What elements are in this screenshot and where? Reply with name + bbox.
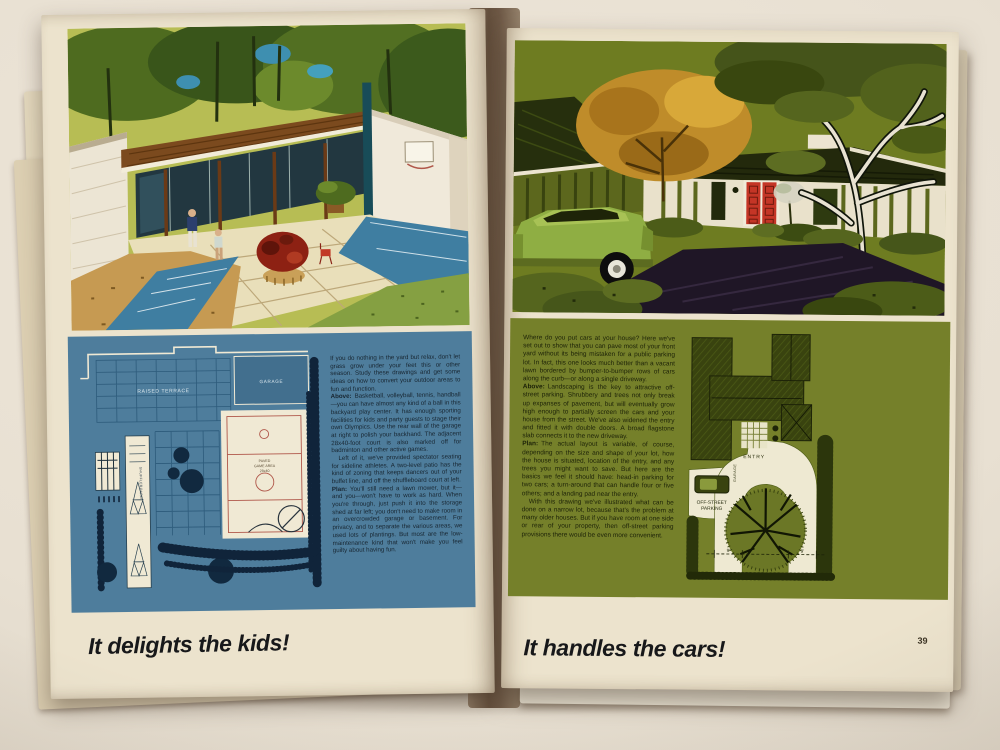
shuffleboard-label: SHUFFLEBOARD — [139, 467, 143, 500]
raised-terrace-label: RAISED TERRACE — [137, 388, 189, 395]
bottom-hedge-inner — [167, 561, 317, 571]
paragraph: Plan:You'll still need a lawn mower, but… — [332, 484, 463, 555]
driveway-illustration — [512, 40, 946, 316]
magazine-photo: RAISED TERRACE GARAGE — [0, 0, 1000, 750]
svg-text:9': 9' — [801, 549, 805, 554]
parking-site-plan: ENTRY GARAGE OFF-STREET PARKING 9' 9' — [684, 324, 948, 596]
parking-plan-panel: Where do you put cars at your house? Her… — [508, 318, 950, 600]
right-page: Where do you put cars at your house? Her… — [501, 28, 959, 692]
backyard-illustration — [67, 23, 469, 331]
bottom-foliage — [690, 576, 834, 577]
page-number: 39 — [917, 636, 927, 646]
right-hedge-inner — [309, 393, 312, 573]
bottom-hedge — [163, 545, 315, 556]
paragraph: Plan:The actual layout is variable, of c… — [522, 441, 674, 500]
game-area-label: PAVED — [259, 459, 271, 463]
shuffleboard-plan: SHUFFLEBOARD — [125, 436, 151, 588]
game-court-plan: PAVED GAME AREA 28x40 — [221, 409, 309, 538]
red-double-doors — [743, 180, 779, 226]
paragraph: Above:Basketball, volleyball, tennis, ha… — [331, 392, 462, 455]
right-caption: It handles the cars! — [523, 634, 725, 663]
paragraph: Where do you put cars at your house? Her… — [523, 334, 675, 384]
paragraph: Left of it, we've provided spectator sea… — [331, 453, 461, 486]
left-text-column: If you do nothing in the yard but relax,… — [330, 353, 463, 555]
entry-lantern — [732, 187, 738, 193]
red-shrub-planter — [256, 231, 309, 286]
svg-text:PARKING: PARKING — [701, 506, 723, 512]
car-plan — [695, 476, 729, 493]
garage-label: GARAGE — [733, 464, 737, 483]
site-plan-panel: RAISED TERRACE GARAGE — [68, 331, 476, 613]
svg-text:GAME AREA: GAME AREA — [254, 464, 276, 468]
right-text-column: Where do you put cars at your house? Her… — [521, 334, 675, 540]
entry-label: ENTRY — [743, 454, 765, 460]
left-page: RAISED TERRACE GARAGE — [41, 9, 495, 699]
paragraph: Above:Landscaping is the key to attracti… — [522, 383, 674, 442]
paragraph: With this drawing we've illustrated what… — [521, 498, 673, 540]
backyard-site-plan: RAISED TERRACE GARAGE — [68, 333, 330, 613]
storage-shed — [95, 452, 120, 502]
svg-text:9': 9' — [727, 548, 731, 553]
paragraph: If you do nothing in the yard but relax,… — [330, 353, 461, 393]
left-caption: It delights the kids! — [88, 629, 290, 660]
parking-label: OFF-STREET — [697, 500, 727, 506]
svg-text:28x40: 28x40 — [260, 469, 270, 473]
garage-label: GARAGE — [259, 379, 283, 384]
